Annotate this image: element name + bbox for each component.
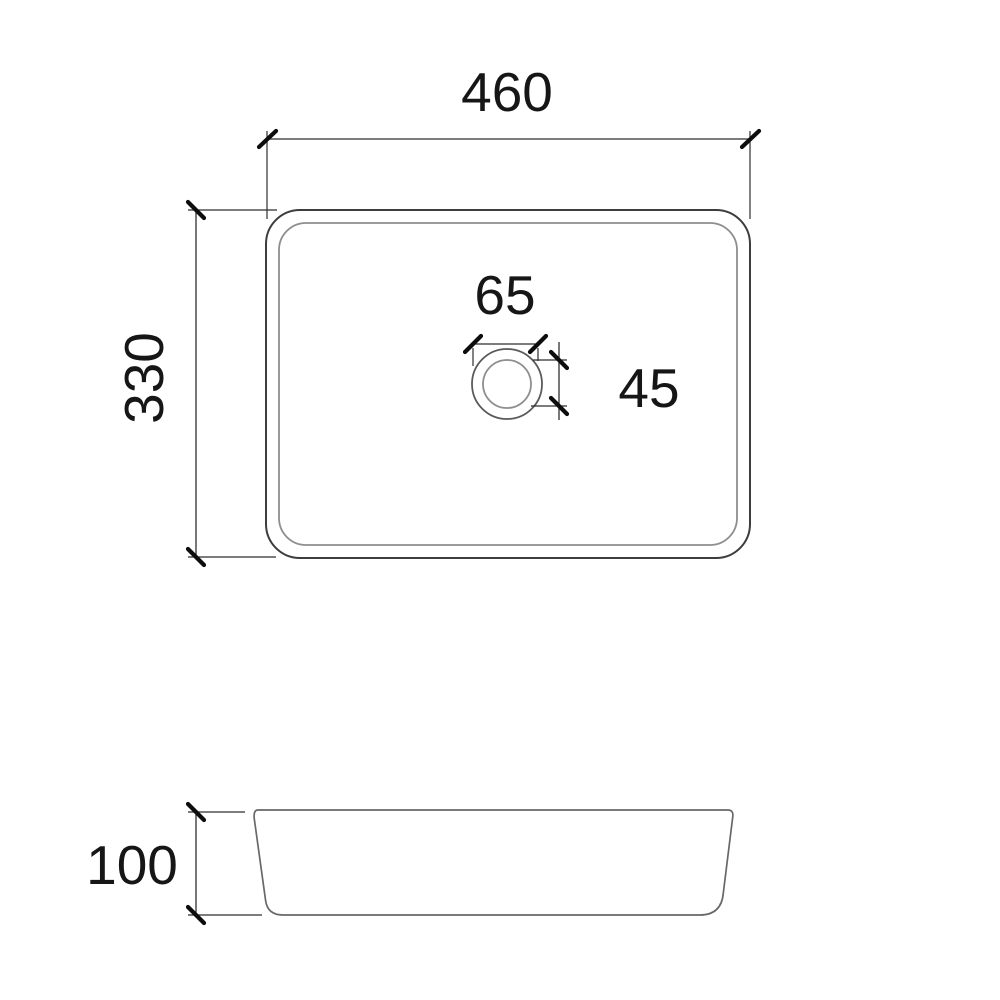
- dimension-width: 460: [259, 61, 759, 219]
- side-view: [254, 810, 733, 915]
- drain-hole-dimension-label: 45: [618, 357, 679, 419]
- height-dimension-label: 100: [86, 834, 178, 896]
- drain-flange-dimension-label: 65: [474, 264, 535, 326]
- width-dimension-label: 460: [461, 61, 553, 123]
- basin-profile-outline: [254, 810, 733, 915]
- sink-technical-drawing: 460 330 65 45 100: [0, 0, 1000, 1000]
- dimension-height: 100: [86, 804, 262, 923]
- drain-hole-circle: [483, 360, 531, 408]
- dimension-drain-hole: 45: [531, 342, 680, 420]
- dimension-depth: 330: [113, 202, 277, 565]
- dimension-drain-flange: 65: [465, 264, 546, 366]
- depth-dimension-label: 330: [113, 332, 175, 424]
